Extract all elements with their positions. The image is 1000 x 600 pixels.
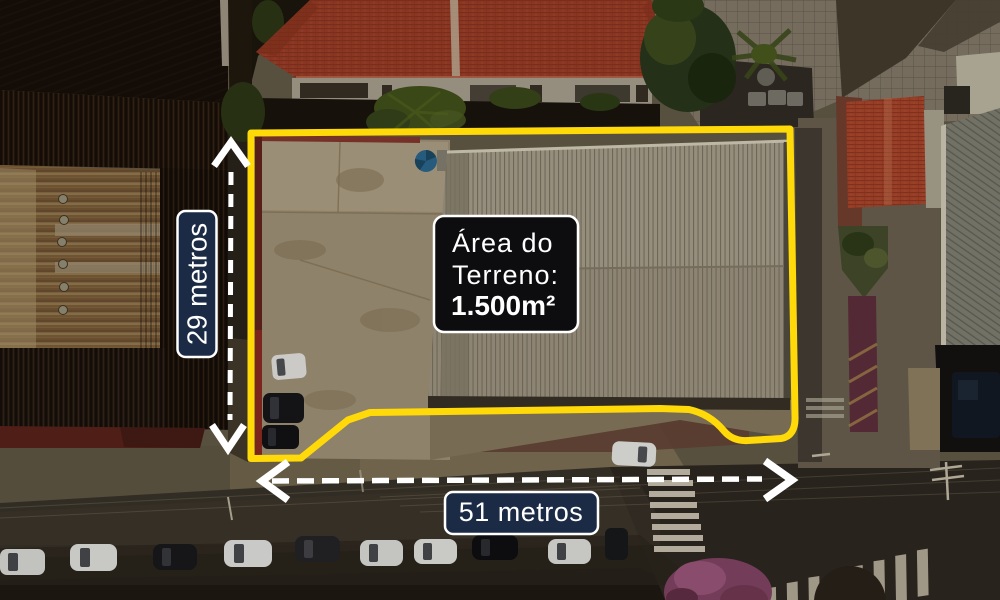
svg-text:1.500m²: 1.500m² bbox=[451, 290, 555, 321]
svg-text:29 metros: 29 metros bbox=[182, 223, 213, 345]
svg-text:Terreno:: Terreno: bbox=[452, 260, 559, 290]
svg-text:Área do: Área do bbox=[452, 228, 554, 258]
svg-text:51 metros: 51 metros bbox=[459, 497, 584, 527]
